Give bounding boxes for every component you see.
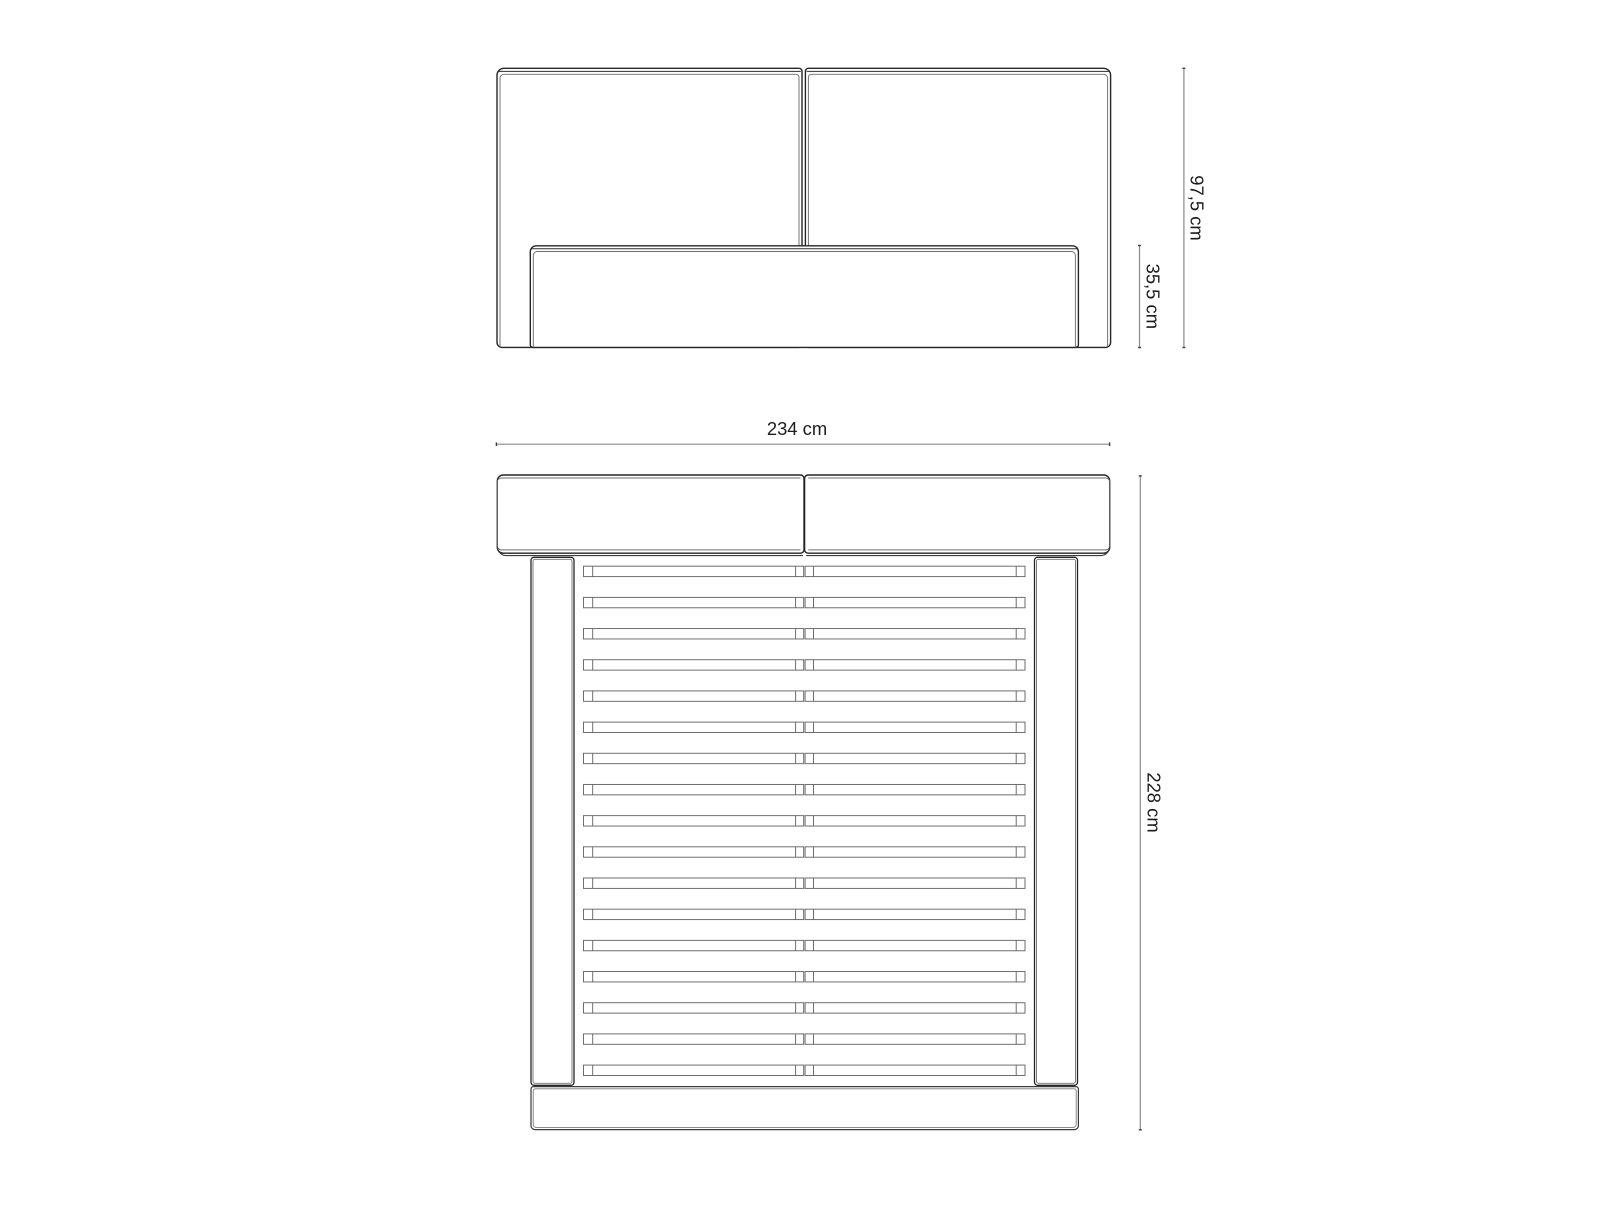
svg-text:97,5 cm: 97,5 cm: [1186, 175, 1207, 240]
svg-text:228 cm: 228 cm: [1144, 772, 1165, 832]
svg-text:234 cm: 234 cm: [767, 418, 827, 439]
svg-text:35,5 cm: 35,5 cm: [1143, 264, 1164, 329]
